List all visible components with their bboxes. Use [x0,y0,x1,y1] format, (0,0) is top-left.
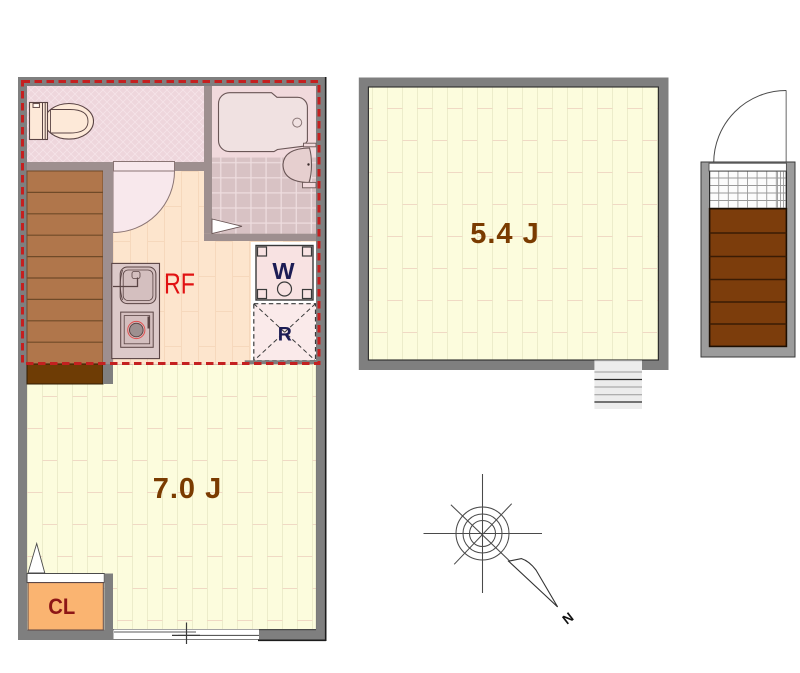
svg-text:W: W [272,258,295,284]
svg-text:RF: RF [164,269,195,301]
svg-text:5.4 J: 5.4 J [470,218,540,250]
svg-text:CL: CL [48,594,75,619]
svg-text:R: R [278,324,292,346]
svg-text:7.0 J: 7.0 J [153,473,223,505]
